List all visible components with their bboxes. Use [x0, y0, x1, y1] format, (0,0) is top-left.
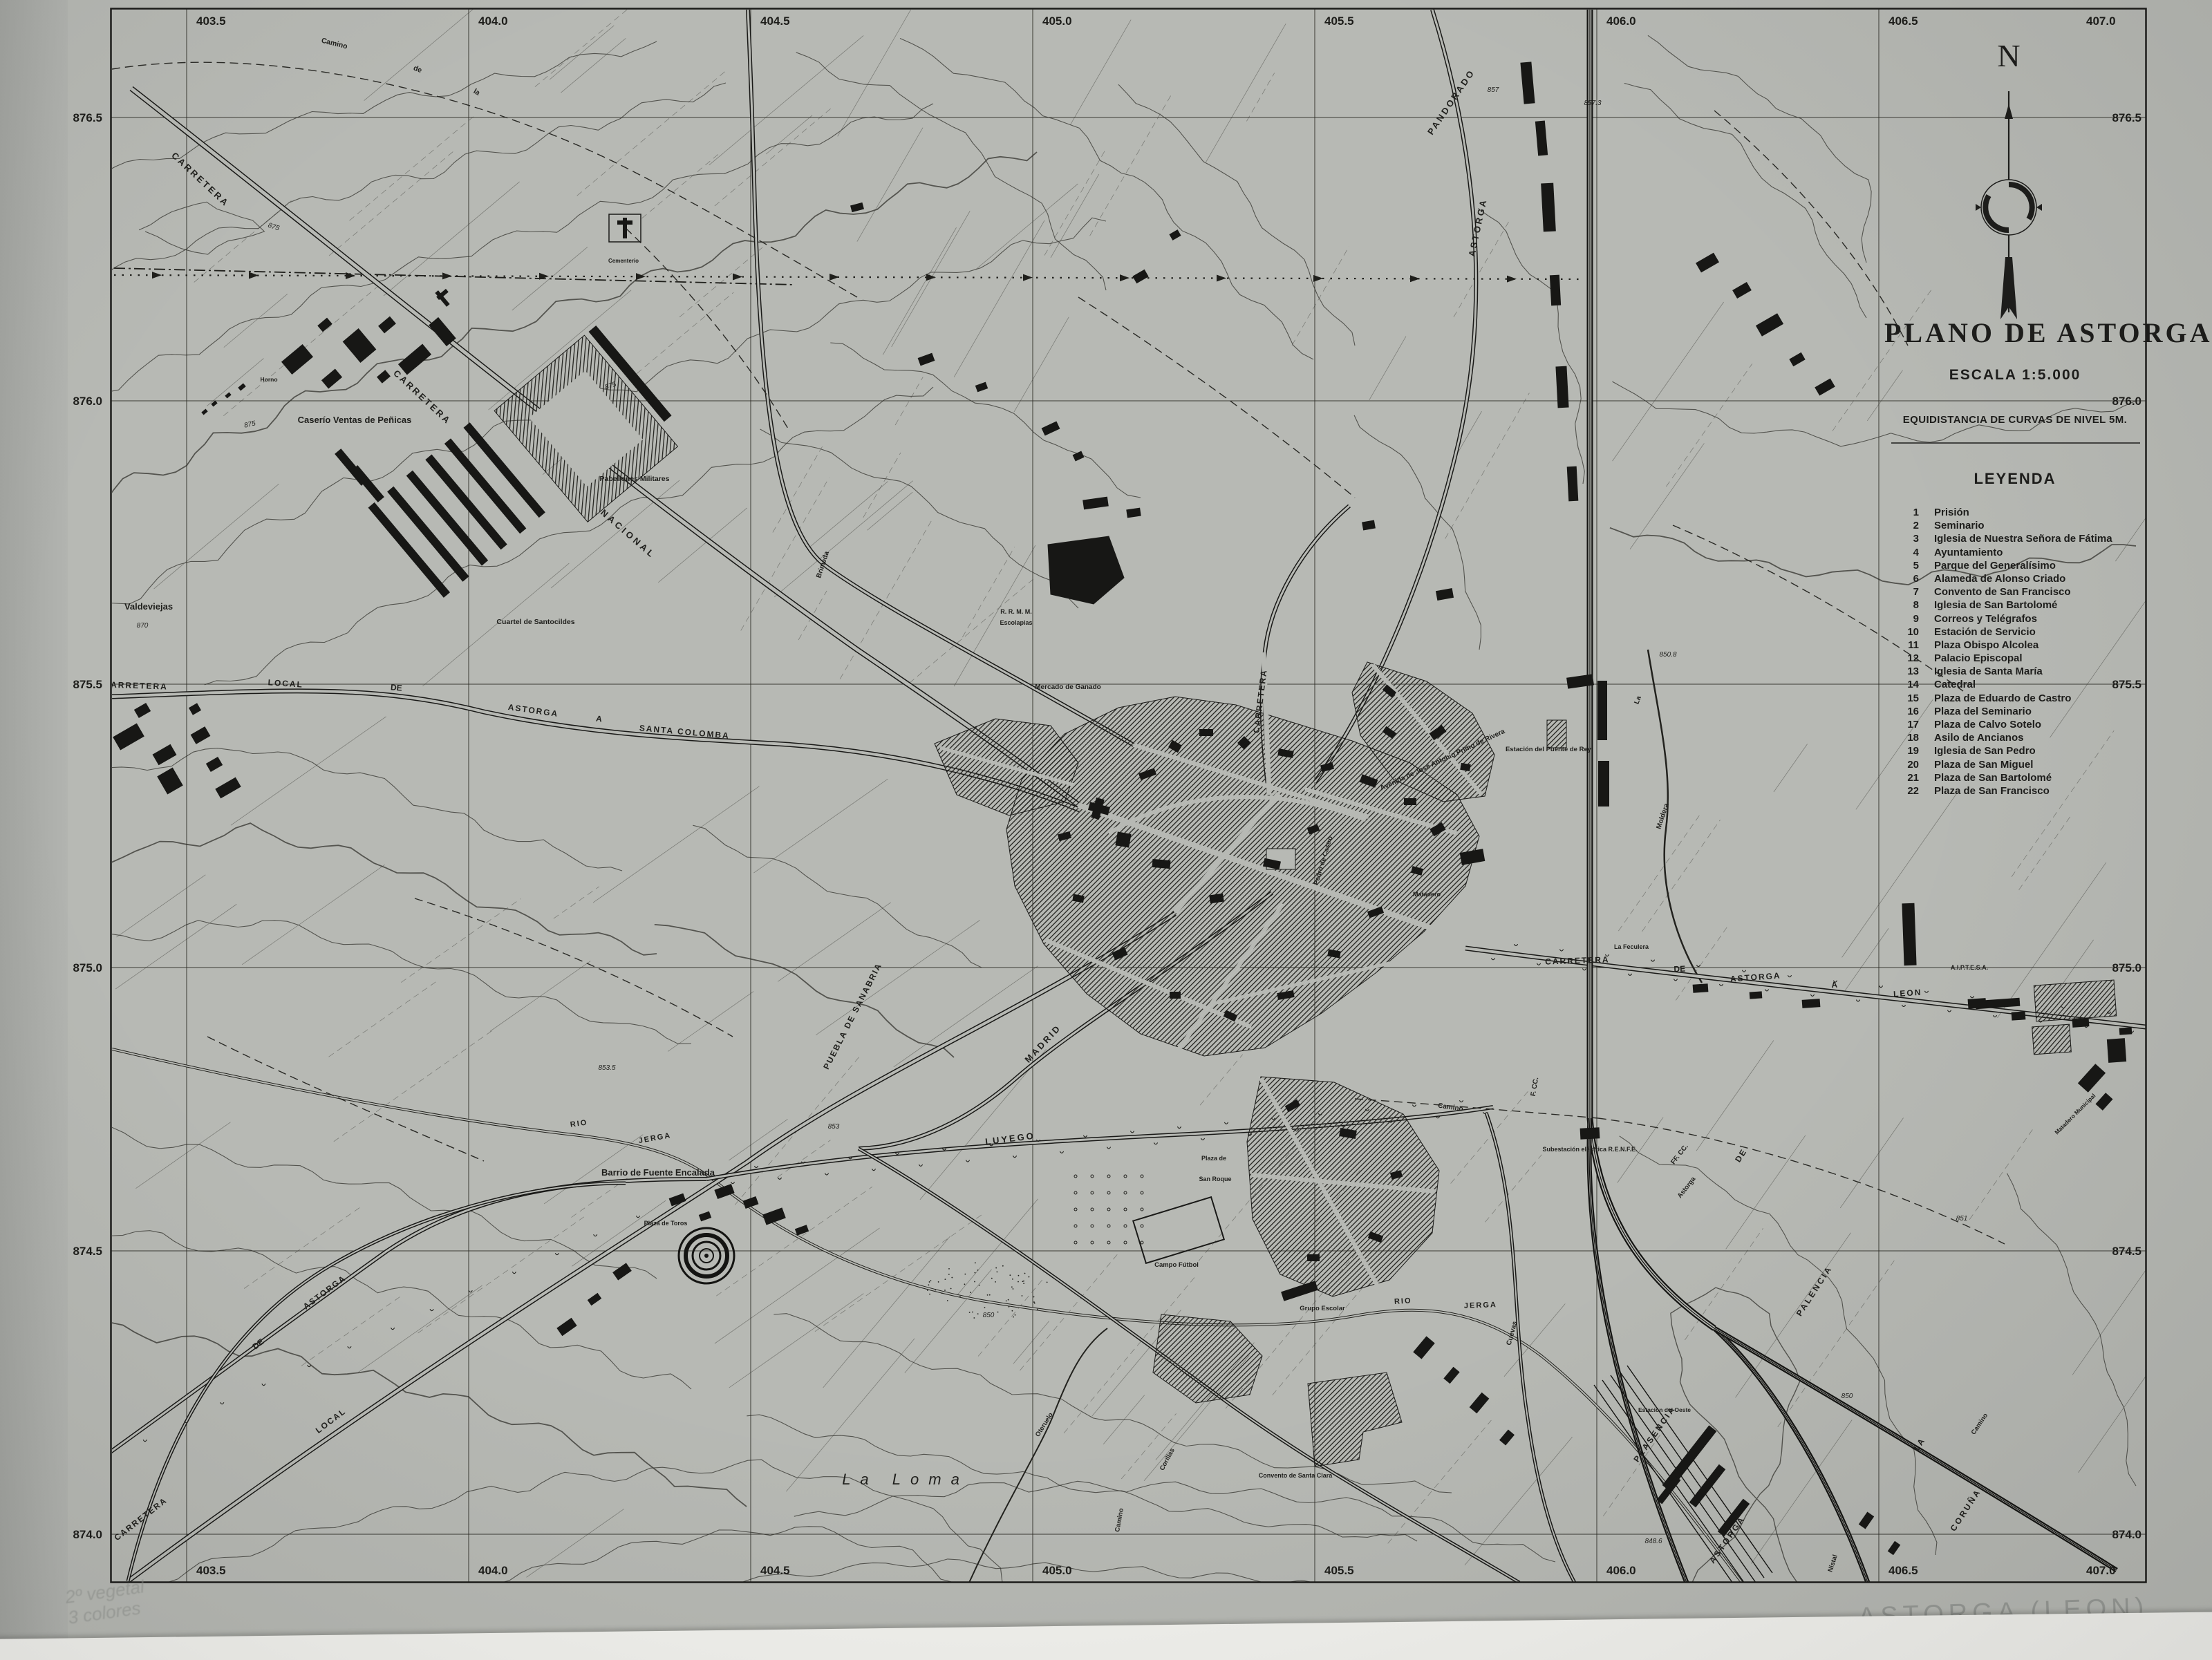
- legend-item-label: Plaza del Seminario: [1919, 706, 2032, 719]
- legend-item-number: 12: [1895, 652, 1919, 666]
- legend-item-number: 14: [1895, 679, 1919, 692]
- legend-heading: LEYENDA: [1884, 470, 2146, 488]
- legend-item-number: 3: [1895, 533, 1919, 546]
- grid-label: 407.0: [2086, 15, 2116, 28]
- map-label: LEON: [1893, 988, 1922, 999]
- legend-item-number: 8: [1895, 599, 1919, 612]
- grid-label: 874.5: [73, 1245, 102, 1258]
- map-label: A: [1831, 980, 1838, 990]
- legend-item-label: Iglesia de Santa María: [1919, 666, 2043, 679]
- legend-item-label: Convento de San Francisco: [1919, 586, 2071, 599]
- legend-item: 3Iglesia de Nuestra Señora de Fátima: [1895, 533, 2139, 546]
- map-label: 853.5: [598, 1064, 615, 1072]
- map-label: Mercado de Ganado: [1035, 683, 1101, 691]
- legend-item-number: 11: [1895, 639, 1919, 652]
- map-label: Estación del Oeste: [1638, 1406, 1691, 1413]
- legend-item-number: 21: [1895, 772, 1919, 785]
- map-label: R. R. M. M.: [1000, 608, 1032, 615]
- legend-item: 21Plaza de San Bartolomé: [1895, 772, 2139, 785]
- map-photo: CARRETERACaminodelaHornoCaserío Ventas d…: [0, 0, 2212, 1660]
- map-label: 850: [983, 1312, 995, 1319]
- map-label: Valdeviejas: [124, 601, 173, 612]
- map-label: Plaza de Toros: [644, 1220, 688, 1227]
- legend-item-label: Plaza de Calvo Sotelo: [1919, 719, 2041, 732]
- legend-item-number: 1: [1895, 507, 1919, 520]
- grid-label: 404.5: [760, 15, 790, 28]
- legend-item: 12Palacio Episcopal: [1895, 652, 2139, 666]
- scale-label: ESCALA 1:5.000: [1884, 367, 2146, 384]
- legend-item: 2Seminario: [1895, 520, 2139, 533]
- grid-label: 875.5: [73, 678, 102, 691]
- legend-item-number: 10: [1895, 626, 1919, 639]
- legend-item: 8Iglesia de San Bartolomé: [1895, 599, 2139, 612]
- grid-label: 407.0: [2086, 1564, 2116, 1577]
- map-label: Cuartel de Santocildes: [496, 618, 574, 626]
- map-label: A.I.P.T.E.S.A.: [1951, 964, 1988, 971]
- legend-item: 4Ayuntamiento: [1895, 547, 2139, 560]
- map-label: Grupo Escolar: [1300, 1305, 1345, 1312]
- legend-item: 10Estación de Servicio: [1895, 626, 2139, 639]
- legend-item-label: Plaza de San Miguel: [1919, 759, 2033, 772]
- grid-label: 403.5: [196, 1564, 226, 1577]
- map-label: San Roque: [1199, 1176, 1231, 1182]
- grid-label: 405.0: [1042, 15, 1072, 28]
- north-letter: N: [1997, 38, 2020, 73]
- legend-item: 5Parque del Generalísimo: [1895, 560, 2139, 573]
- legend-item-label: Plaza de San Bartolomé: [1919, 772, 2052, 785]
- grid-label: 874.0: [73, 1528, 102, 1541]
- grid-label: 876.5: [2112, 111, 2141, 124]
- map-label: 851: [1956, 1215, 1968, 1223]
- map-label: Barrio de Fuente Encalada: [601, 1167, 715, 1178]
- map-label: Plaza de: [1201, 1155, 1226, 1162]
- legend-item-label: Prisión: [1919, 507, 1969, 520]
- grid-label: 406.0: [1606, 1564, 1636, 1577]
- legend-item-number: 15: [1895, 692, 1919, 706]
- grid-label: 876.0: [2112, 395, 2141, 408]
- legend-item-number: 7: [1895, 586, 1919, 599]
- legend-item-number: 18: [1895, 732, 1919, 745]
- grid-label: 406.5: [1888, 15, 1918, 28]
- legend-item-label: Seminario: [1919, 520, 1985, 533]
- equidistance-label: EQUIDISTANCIA DE CURVAS DE NIVEL 5M.: [1884, 414, 2146, 426]
- grid-label: 404.5: [760, 1564, 790, 1577]
- map-label: Estación del Puente de Rey: [1506, 746, 1592, 753]
- grid-label: 875.0: [2112, 961, 2141, 974]
- map-label: Matadero: [1413, 891, 1441, 898]
- legend-item-label: Plaza Obispo Alcolea: [1919, 639, 2038, 652]
- legend-item-number: 19: [1895, 745, 1919, 758]
- map-label: 857.3: [1584, 100, 1601, 107]
- paper-left-margin: [0, 0, 68, 1660]
- legend-item-label: Iglesia de Nuestra Señora de Fátima: [1919, 533, 2112, 546]
- legend-item-number: 20: [1895, 759, 1919, 772]
- legend-item: 20Plaza de San Miguel: [1895, 759, 2139, 772]
- map-label: Convento de Santa Clara: [1259, 1472, 1333, 1479]
- grid-label: 876.5: [73, 111, 102, 124]
- grid-label: 405.0: [1042, 1564, 1072, 1577]
- compass-ring-outer: [1981, 180, 2036, 235]
- grid-label: 405.5: [1324, 15, 1354, 28]
- legend-item-number: 5: [1895, 560, 1919, 573]
- legend-item: 18Asilo de Ancianos: [1895, 732, 2139, 745]
- legend-item-number: 9: [1895, 613, 1919, 626]
- legend-item-label: Parque del Generalísimo: [1919, 560, 2056, 573]
- grid-label: 406.5: [1888, 1564, 1918, 1577]
- map-label: Subestación eléctrica R.E.N.F.E.: [1542, 1146, 1637, 1153]
- map-label: Campo Fútbol: [1154, 1261, 1199, 1269]
- grid-label: 876.0: [73, 395, 102, 408]
- map-label: RIO: [1394, 1296, 1412, 1306]
- grid-label: 875.0: [73, 961, 102, 974]
- map-label: Cementerio: [608, 258, 639, 264]
- legend-item-label: Alameda de Alonso Criado: [1919, 573, 2065, 586]
- legend-item-number: 4: [1895, 547, 1919, 560]
- legend-item-label: Correos y Telégrafos: [1919, 613, 2037, 626]
- legend-item-label: Iglesia de San Bartolomé: [1919, 599, 2057, 612]
- map-label: La Feculera: [1614, 943, 1649, 950]
- map-label: 848.6: [1644, 1538, 1662, 1545]
- topographic-map-canvas: CARRETERACaminodelaHornoCaserío Ventas d…: [0, 0, 2212, 1660]
- legend-list: 1Prisión2Seminario3Iglesia de Nuestra Se…: [1895, 507, 2139, 798]
- legend-item: 17Plaza de Calvo Sotelo: [1895, 719, 2139, 732]
- grid-label: 404.0: [478, 1564, 508, 1577]
- legend-item: 22Plaza de San Francisco: [1895, 785, 2139, 798]
- map-label: Caserío Ventas de Peñicas: [298, 415, 412, 425]
- map-label: 857: [1488, 86, 1499, 94]
- map-label: JERGA: [1464, 1301, 1497, 1310]
- legend-item: 15Plaza de Eduardo de Castro: [1895, 692, 2139, 706]
- map-title: PLANO DE ASTORGA: [1884, 317, 2146, 349]
- legend-item: 11Plaza Obispo Alcolea: [1895, 639, 2139, 652]
- map-label: La Loma: [842, 1471, 969, 1488]
- grid-label: 874.0: [2112, 1528, 2141, 1541]
- map-label: DE: [1674, 964, 1685, 974]
- grid-label: 874.5: [2112, 1245, 2141, 1258]
- legend-item: 7Convento de San Francisco: [1895, 586, 2139, 599]
- legend-item: 19Iglesia de San Pedro: [1895, 745, 2139, 758]
- map-label: 870: [137, 622, 149, 630]
- map-label: Pabellones Militares: [600, 475, 670, 483]
- legend-item-label: Asilo de Ancianos: [1919, 732, 2023, 745]
- grid-label: 406.0: [1606, 15, 1636, 28]
- legend-item-number: 16: [1895, 706, 1919, 719]
- legend-item-label: Catedral: [1919, 679, 1976, 692]
- legend-item-label: Ayuntamiento: [1919, 547, 2003, 560]
- map-label: 850.8: [1659, 651, 1676, 659]
- grid-label: 404.0: [478, 15, 508, 28]
- legend-item-label: Palacio Episcopal: [1919, 652, 2023, 666]
- legend-item: 13Iglesia de Santa María: [1895, 666, 2139, 679]
- grid-label: 403.5: [196, 15, 226, 28]
- legend-item-label: Plaza de Eduardo de Castro: [1919, 692, 2071, 706]
- legend-item-number: 22: [1895, 785, 1919, 798]
- legend-item: 1Prisión: [1895, 507, 2139, 520]
- legend-item: 6Alameda de Alonso Criado: [1895, 573, 2139, 586]
- map-label: DE: [390, 682, 402, 692]
- legend-item-label: Plaza de San Francisco: [1919, 785, 2050, 798]
- legend-item-number: 2: [1895, 520, 1919, 533]
- grid-label: 405.5: [1324, 1564, 1354, 1577]
- legend-item: 16Plaza del Seminario: [1895, 706, 2139, 719]
- legend-item: 9Correos y Telégrafos: [1895, 613, 2139, 626]
- legend-item-number: 6: [1895, 573, 1919, 586]
- legend-item-number: 13: [1895, 666, 1919, 679]
- legend-item-label: Estación de Servicio: [1919, 626, 2036, 639]
- map-label: Escolapias: [1000, 619, 1032, 626]
- map-label: Horno: [260, 376, 277, 383]
- legend-item-label: Iglesia de San Pedro: [1919, 745, 2036, 758]
- map-label: 850: [1841, 1393, 1853, 1400]
- map-label: 853: [828, 1123, 840, 1131]
- legend-item-number: 17: [1895, 719, 1919, 732]
- legend-item: 14Catedral: [1895, 679, 2139, 692]
